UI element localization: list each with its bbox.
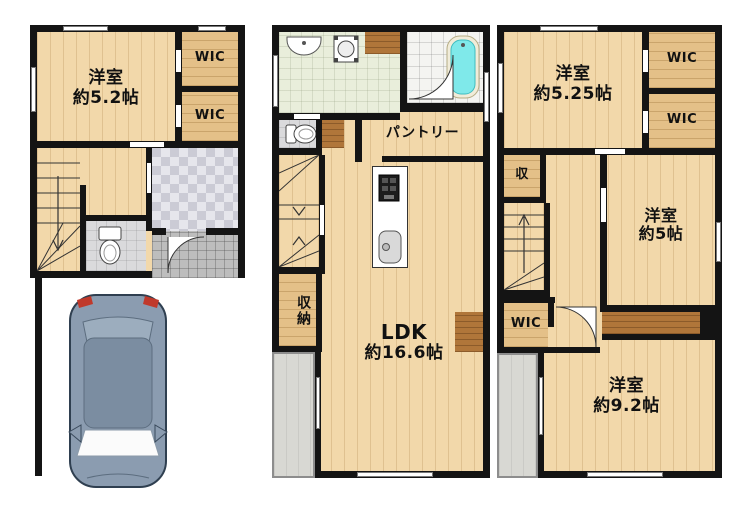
wall <box>642 88 715 94</box>
window <box>357 472 433 477</box>
window <box>587 472 663 477</box>
wall <box>600 305 715 312</box>
window <box>498 63 503 113</box>
stove-icon <box>378 174 400 202</box>
door-opening <box>176 50 181 72</box>
pantry-label: パントリー <box>362 125 483 141</box>
wall <box>400 32 407 103</box>
sliding-door-opening <box>601 188 606 222</box>
car-icon <box>67 292 169 490</box>
door-opening <box>643 50 648 72</box>
room-name: 洋室 <box>607 207 715 225</box>
wall <box>279 148 322 155</box>
wall <box>175 86 238 92</box>
balcony-2f <box>272 352 315 478</box>
room-name: 洋室 <box>37 69 175 89</box>
room-label-bedroom-mid-3f: 洋室 約5帖 <box>607 207 715 244</box>
window <box>63 26 108 31</box>
room-label-bedroom-top-3f: 洋室 約5.25帖 <box>504 65 642 104</box>
sink-icon <box>284 34 324 56</box>
room-name: 洋室 <box>538 377 715 397</box>
room-name: 洋室 <box>504 65 642 85</box>
window <box>484 72 489 122</box>
door-opening <box>294 114 320 119</box>
window <box>273 55 278 107</box>
floor-plan-canvas: 洋室 約5.2帖 WIC WIC <box>0 0 740 514</box>
wall <box>272 25 490 32</box>
room-size: 約5帖 <box>607 225 715 243</box>
wic-label: WIC <box>649 113 715 128</box>
door-arc-icon <box>408 53 456 101</box>
door-opening <box>643 111 648 133</box>
window <box>31 67 36 112</box>
floor-plan-1f: 洋室 約5.2帖 WIC WIC <box>30 25 245 278</box>
wall <box>152 228 166 235</box>
kitchen-sink-icon <box>378 230 402 264</box>
room-size: 約5.2帖 <box>37 89 175 109</box>
door-arc-icon <box>554 305 598 349</box>
window <box>316 377 320 429</box>
wic-label: WIC <box>182 109 238 124</box>
wall <box>497 25 722 32</box>
wall <box>30 271 152 278</box>
wall <box>504 347 600 353</box>
wall <box>279 267 325 274</box>
wall <box>602 334 700 340</box>
storage-small-label: 収 <box>504 168 540 183</box>
toilet-icon <box>284 122 318 146</box>
door-opening <box>147 163 151 193</box>
wall <box>400 103 483 112</box>
entrance-hall <box>152 148 238 231</box>
door-opening <box>320 205 324 235</box>
room-label-bedroom-big-3f: 洋室 約9.2帖 <box>538 377 715 416</box>
room-label-ldk: LDK 約16.6帖 <box>325 321 483 364</box>
wall <box>35 278 42 476</box>
wall <box>544 203 550 290</box>
stairs-icon <box>504 203 544 290</box>
wall <box>504 290 550 297</box>
wic-label: WIC <box>504 317 548 332</box>
room-size: 約16.6帖 <box>325 344 483 364</box>
wall <box>80 185 86 271</box>
room-label-bedroom-1f: 洋室 約5.2帖 <box>37 69 175 108</box>
wall <box>355 113 362 162</box>
window <box>540 26 598 31</box>
window <box>716 222 721 262</box>
wall <box>206 228 238 235</box>
storage-label: 収納 <box>285 283 311 339</box>
door-opening <box>176 105 181 127</box>
wall <box>238 25 245 278</box>
closet-dark <box>365 32 400 54</box>
wic-label: WIC <box>649 52 715 67</box>
balcony-3f <box>497 353 538 478</box>
closet-dark <box>322 120 344 148</box>
room-size: 約5.25帖 <box>504 85 642 105</box>
stairs-icon <box>37 148 80 271</box>
room-name: LDK <box>325 321 483 344</box>
wall <box>30 25 37 278</box>
door-arc-icon <box>166 235 206 275</box>
wall <box>504 197 546 203</box>
floor-plan-2f: パントリー 収納 LDK 約16.6帖 <box>272 25 490 478</box>
closet-dark <box>602 312 700 334</box>
wall <box>600 155 607 305</box>
door-opening <box>130 142 164 147</box>
washing-machine-icon <box>332 34 360 64</box>
wall <box>382 156 483 162</box>
wic-label: WIC <box>182 51 238 66</box>
stairs-icon <box>279 155 319 267</box>
wall <box>700 312 715 340</box>
window <box>198 26 226 31</box>
wall <box>80 215 146 221</box>
door-opening <box>595 149 625 154</box>
room-size: 約9.2帖 <box>538 397 715 417</box>
wall <box>548 303 554 327</box>
floor-plan-3f: 洋室 約5.25帖 WIC WIC 収 洋室 約5帖 WIC 洋室 約9.2帖 <box>497 25 722 478</box>
wall <box>316 274 322 352</box>
parking-area <box>30 278 245 514</box>
wall <box>540 155 546 203</box>
toilet-icon <box>96 225 124 267</box>
